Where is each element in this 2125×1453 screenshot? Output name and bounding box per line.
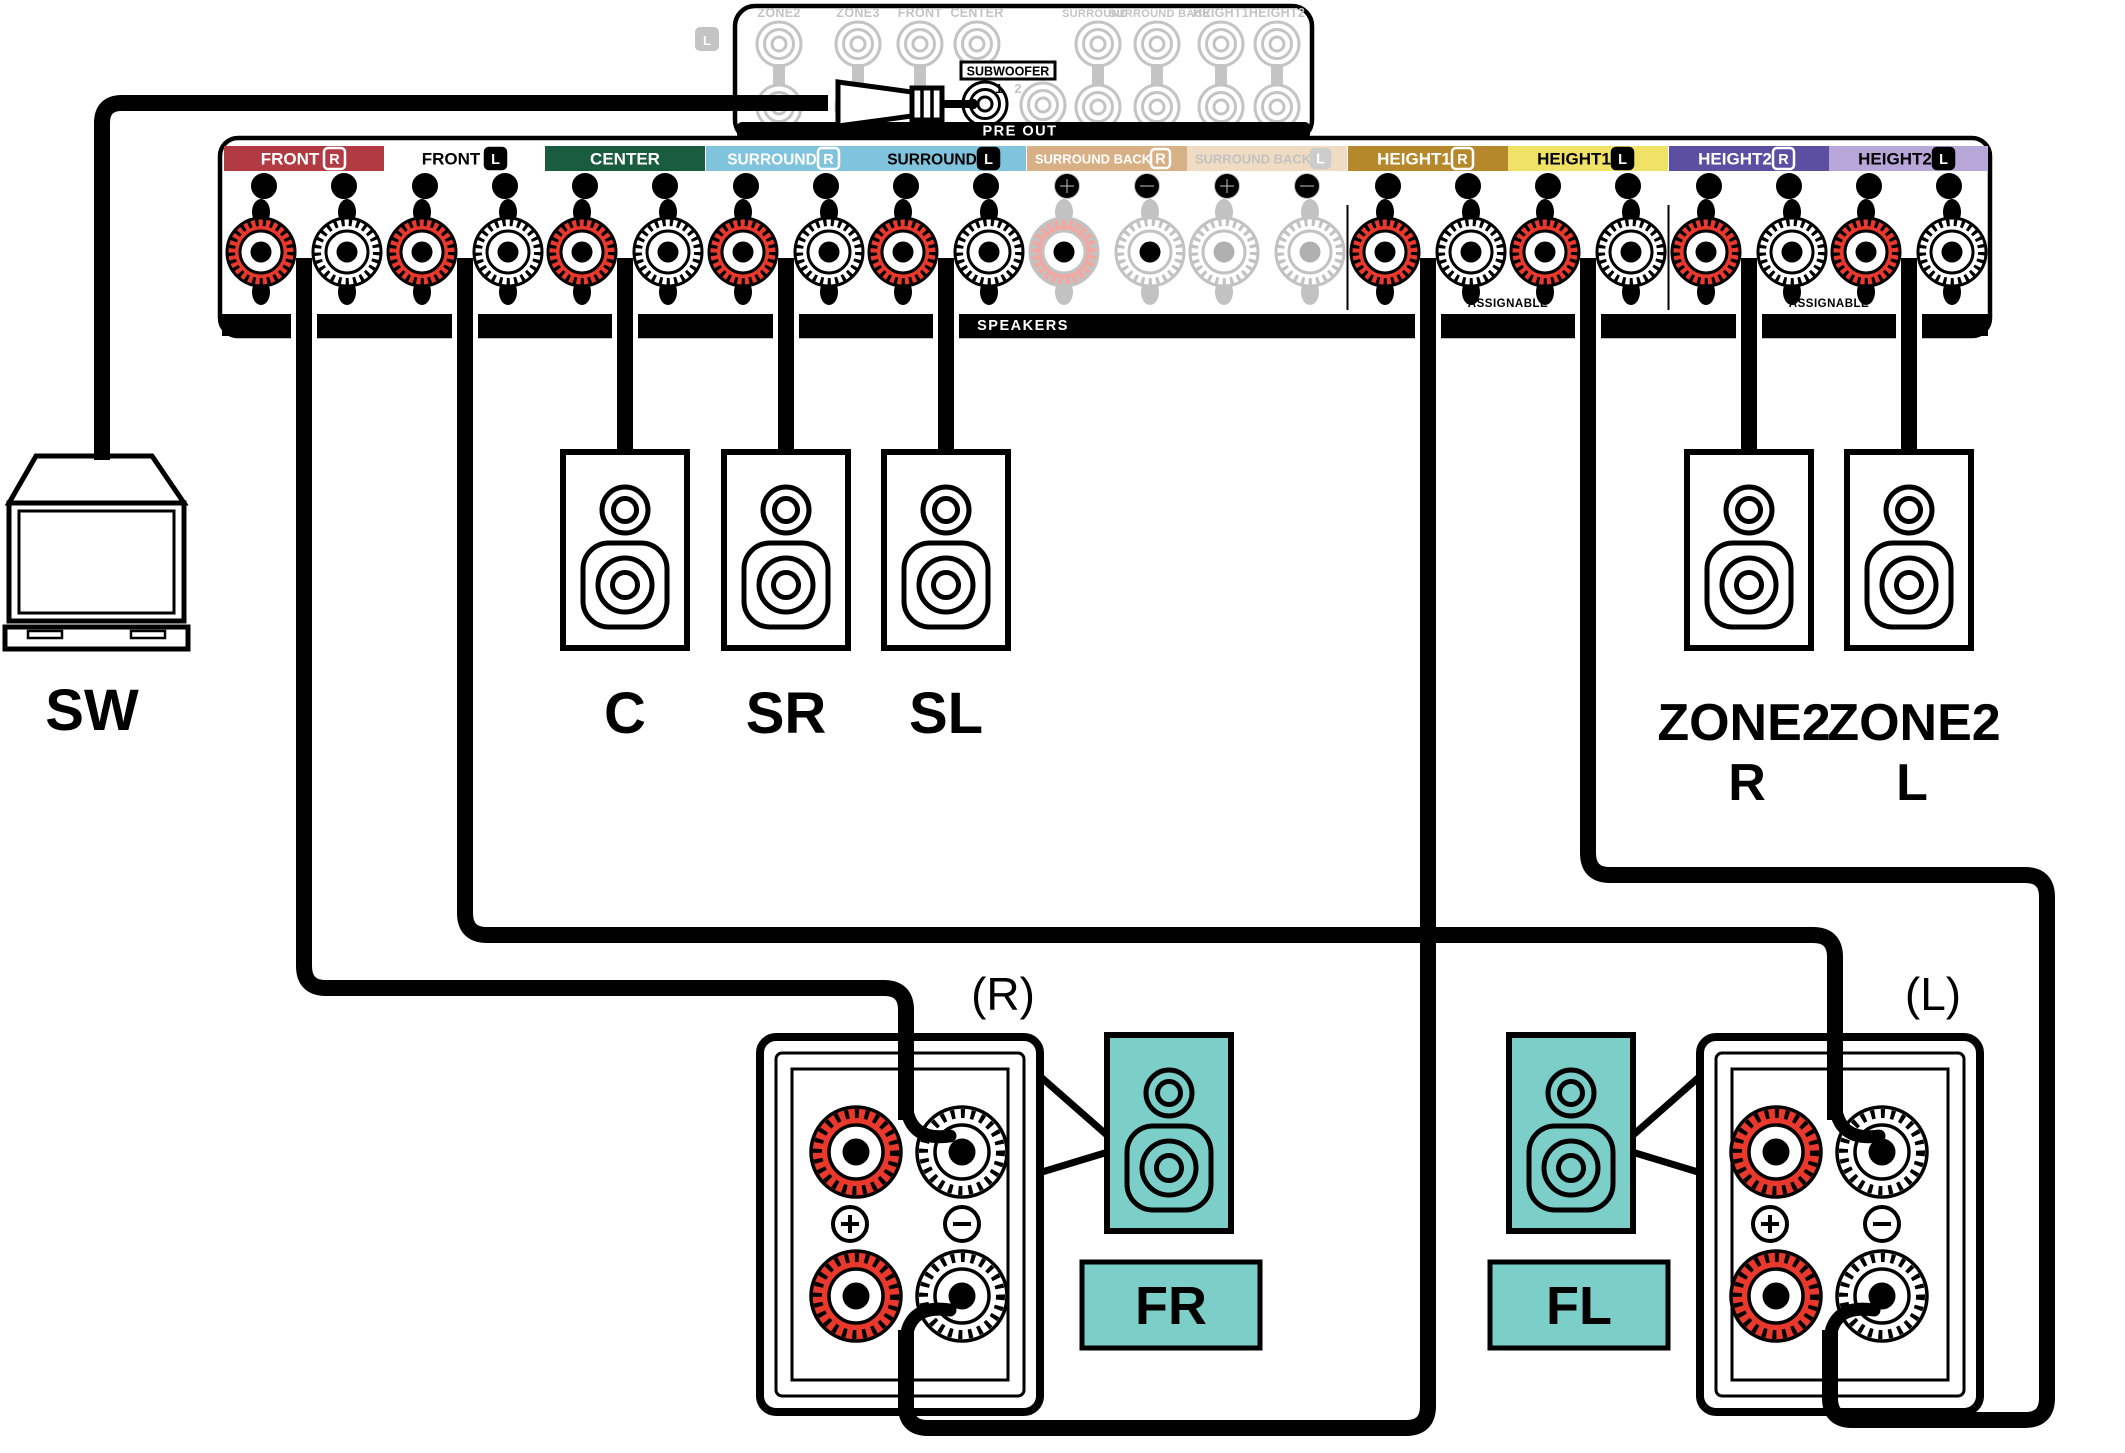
rca-jack-icon (1135, 22, 1179, 66)
section-label-surround-back-l: SURROUND BACK (1195, 152, 1312, 167)
section-label-surround-r: SURROUND (727, 152, 817, 169)
rca-jack-icon (1076, 22, 1120, 66)
svg-text:R: R (823, 152, 834, 168)
center-speaker: C (563, 452, 687, 746)
preout-label-zone2: ZONE2 (757, 6, 800, 20)
svg-text:R: R (329, 152, 340, 168)
binding-post-white (1837, 1107, 1927, 1197)
callout-line (1042, 1078, 1108, 1136)
surround-right-speaker: SR (724, 452, 848, 746)
svg-text:L: L (491, 152, 500, 168)
biamp-plate-right: (R) (760, 968, 1108, 1412)
svg-text:ZONE2: ZONE2 (1827, 694, 2000, 752)
front-left-tag: FL (1546, 1276, 1612, 1336)
zone2-left-speaker: ZONE2 L (1827, 452, 2000, 812)
subwoofer-speaker: SW (5, 456, 188, 743)
section-label-surround-back-r: SURROUND BACK (1035, 152, 1152, 167)
rca-jack-icon (955, 22, 999, 66)
subwoofer-jack2-number: 2 (1014, 81, 1021, 96)
svg-text:L: L (984, 152, 993, 168)
binding-post-red (811, 1107, 901, 1197)
svg-text:R: R (1728, 754, 1766, 812)
assignable-label-height1: ASSIGNABLE (1468, 298, 1548, 310)
binding-post-red (811, 1251, 901, 1341)
rca-jack-icon (1255, 22, 1299, 66)
surround-left-speaker: SL (884, 452, 1008, 746)
subwoofer-jack1-number: 1 (995, 81, 1002, 96)
assignable-label-height2: ASSIGNABLE (1789, 298, 1869, 310)
strip-bottom-bar (222, 314, 1988, 336)
left-channel-label: (L) (1905, 968, 1961, 1020)
svg-text:C: C (604, 681, 646, 746)
preout-label-center: CENTER (950, 6, 1003, 20)
preout-label-height2: HEIGHT2 (1249, 6, 1305, 20)
rca-jack-icon (1199, 22, 1243, 66)
plus-terminal-icon (833, 1207, 867, 1241)
section-label-height1-l: HEIGHT1 (1537, 150, 1611, 169)
svg-text:L: L (1618, 152, 1627, 168)
preout-label-height1: HEIGHT1 (1193, 6, 1249, 20)
subwoofer-jack-2-icon (1021, 83, 1065, 127)
zone2-right-speaker: ZONE2 R (1657, 452, 1830, 812)
preout-panel: L ZONE2 ZONE3 FRONT CENTER SURROUND SURR… (695, 6, 1312, 140)
preout-label-front: FRONT (898, 6, 943, 20)
svg-text:L: L (1939, 152, 1948, 168)
section-label-height1-r: HEIGHT1 (1377, 150, 1451, 169)
plus-terminal-icon (1753, 1207, 1787, 1241)
right-channel-label: (R) (971, 968, 1035, 1020)
rca-jack-icon (757, 22, 801, 66)
front-left-speaker: FL (1490, 1035, 1668, 1348)
section-label-height2-l: HEIGHT2 (1858, 150, 1932, 169)
section-label-height2-r: HEIGHT2 (1698, 150, 1772, 169)
subwoofer-label: SW (45, 678, 139, 743)
rca-jack-icon (836, 22, 880, 66)
biamp-plate-left: (L) (1632, 968, 1980, 1412)
section-label-front-r: FRONT (261, 150, 320, 169)
section-label-center: CENTER (590, 150, 660, 169)
preout-label-zone3: ZONE3 (836, 6, 879, 20)
binding-post-white (917, 1107, 1007, 1197)
binding-post-white (1837, 1251, 1927, 1341)
binding-post-red (1731, 1107, 1821, 1197)
section-label-surround-l: SURROUND (887, 152, 977, 169)
callout-line (1632, 1078, 1698, 1136)
svg-text:R: R (1778, 152, 1789, 168)
binding-post-red (1731, 1251, 1821, 1341)
subwoofer-label: SUBWOOFER (967, 65, 1050, 79)
svg-text:L: L (1316, 152, 1325, 168)
front-right-speaker: FR (1082, 1035, 1260, 1348)
svg-text:R: R (1155, 152, 1166, 168)
svg-text:R: R (1457, 152, 1468, 168)
speakers-bar-label: SPEAKERS (977, 318, 1069, 334)
strip-section-bars: FRONT R FRONT L CENTER SURROUND R SURROU… (224, 146, 1988, 171)
speaker-connection-diagram: L ZONE2 ZONE3 FRONT CENTER SURROUND SURR… (0, 0, 2125, 1453)
svg-text:SL: SL (909, 681, 983, 746)
minus-terminal-icon (945, 1207, 979, 1241)
callout-line (1632, 1152, 1698, 1172)
svg-text:SR: SR (746, 681, 827, 746)
minus-terminal-icon (1865, 1207, 1899, 1241)
rca-jack-icon (898, 22, 942, 66)
binding-post-white (917, 1251, 1007, 1341)
channel-l-badge-label: L (703, 33, 711, 48)
front-right-tag: FR (1135, 1276, 1207, 1336)
section-label-front-l: FRONT (422, 150, 481, 169)
svg-text:ZONE2: ZONE2 (1657, 694, 1830, 752)
svg-text:L: L (1896, 754, 1928, 812)
callout-line (1042, 1152, 1108, 1172)
